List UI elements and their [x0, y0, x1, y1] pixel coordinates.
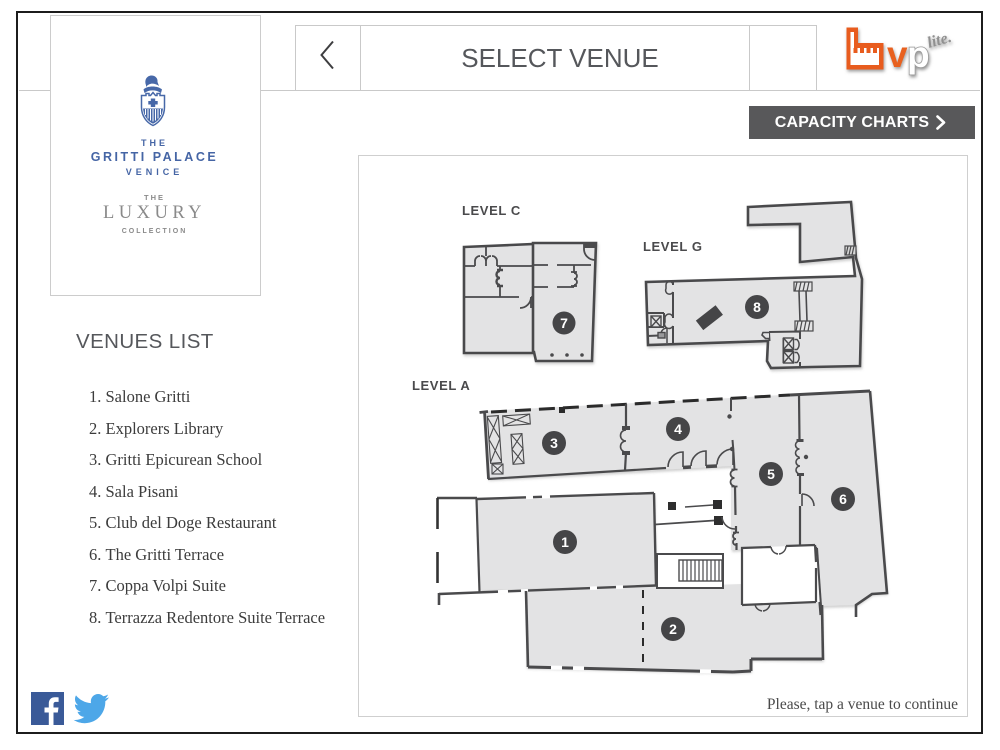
svg-text:3: 3	[550, 435, 558, 451]
svg-text:6: 6	[839, 491, 847, 507]
svg-text:4: 4	[674, 421, 682, 437]
svg-text:1: 1	[561, 534, 569, 550]
svg-text:5: 5	[767, 466, 775, 482]
svg-text:2: 2	[669, 621, 677, 637]
svg-text:8: 8	[753, 299, 761, 315]
svg-text:7: 7	[560, 315, 568, 331]
